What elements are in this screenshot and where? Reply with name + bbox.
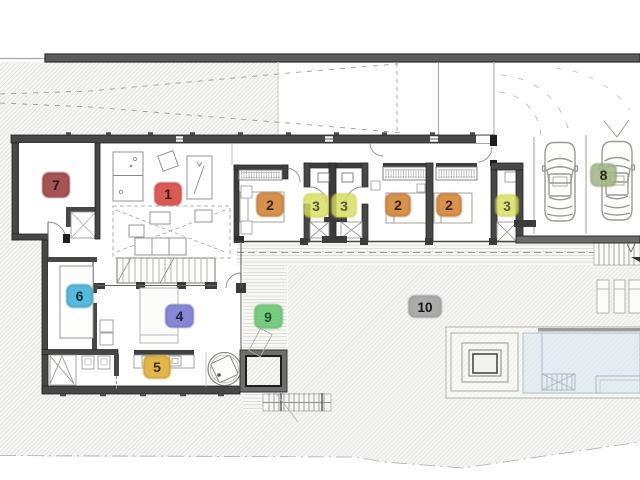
svg-text:6: 6 xyxy=(76,288,84,304)
svg-text:3: 3 xyxy=(340,198,348,214)
svg-text:2: 2 xyxy=(445,197,453,213)
svg-text:3: 3 xyxy=(312,198,320,214)
svg-text:8: 8 xyxy=(600,167,608,183)
svg-text:2: 2 xyxy=(394,197,402,213)
svg-text:10: 10 xyxy=(417,300,432,315)
svg-text:9: 9 xyxy=(264,309,272,325)
svg-text:7: 7 xyxy=(52,177,60,193)
svg-text:1: 1 xyxy=(164,186,172,202)
svg-text:5: 5 xyxy=(153,359,161,375)
svg-text:4: 4 xyxy=(176,308,184,324)
svg-text:2: 2 xyxy=(266,197,274,213)
svg-text:3: 3 xyxy=(503,198,511,214)
